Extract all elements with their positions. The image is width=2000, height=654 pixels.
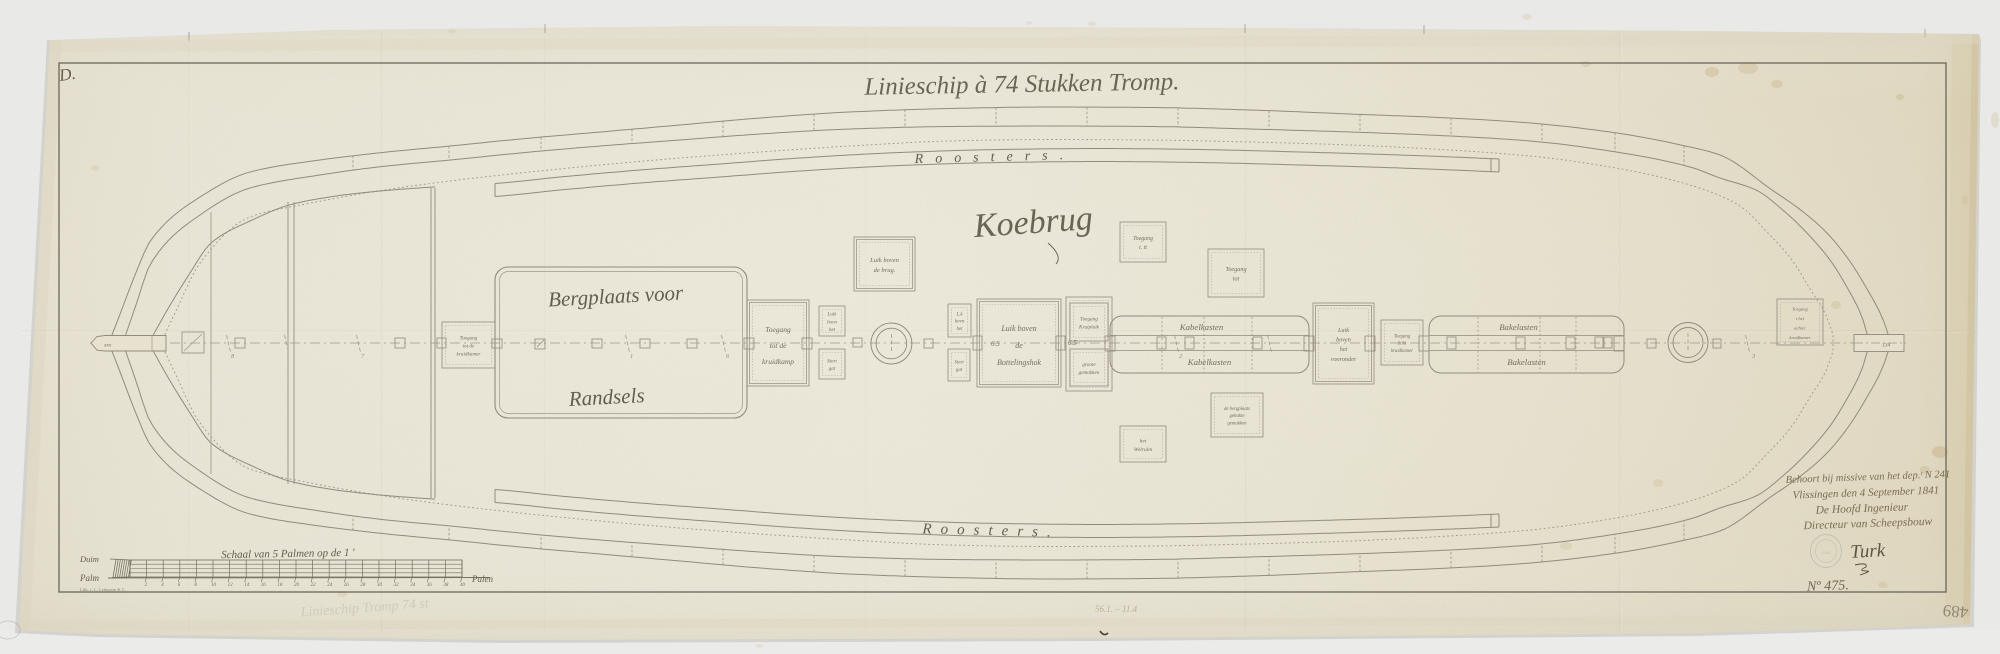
svg-text:Randsels: Randsels (567, 383, 645, 411)
svg-text:Toegang: Toegang (1133, 236, 1153, 242)
svg-text:de: de (1015, 341, 1023, 350)
svg-text:het: het (1340, 346, 1348, 353)
svg-text:Luik boven: Luik boven (869, 257, 899, 264)
svg-text:32: 32 (394, 583, 400, 588)
svg-text:Luik: Luik (1337, 327, 1349, 334)
svg-text:Bakelasten: Bakelasten (1507, 357, 1546, 367)
svg-text:xxx: xxx (103, 343, 112, 349)
svg-text:134: 134 (1882, 342, 1891, 349)
svg-text:24: 24 (327, 583, 333, 588)
svg-text:14: 14 (244, 583, 250, 588)
svg-text:Toegang: Toegang (1080, 316, 1098, 322)
svg-text:36: 36 (427, 583, 433, 588)
svg-text:38: 38 (443, 583, 449, 588)
svg-text:Kabelkasten: Kabelkasten (1187, 357, 1232, 367)
svg-text:Stikt: Stikt (1398, 342, 1407, 347)
svg-text:Stort: Stort (827, 359, 837, 364)
svg-text:de bergplaats: de bergplaats (1224, 407, 1250, 412)
svg-text:vooronder: vooronder (1331, 356, 1357, 363)
svg-text:bovn: bovn (955, 320, 965, 325)
svg-text:10: 10 (211, 583, 217, 588)
svg-text:boven: boven (1336, 337, 1351, 344)
svg-text:groote: groote (1082, 362, 1096, 368)
svg-text:gehakte: gehakte (1230, 414, 1246, 419)
svg-text:Toegang: Toegang (460, 335, 478, 341)
svg-text:56.1. – 11.4: 56.1. – 11.4 (1095, 604, 1138, 614)
svg-text:18: 18 (277, 583, 283, 588)
svg-text:12: 12 (228, 583, 234, 588)
svg-text:bovn: bovn (827, 320, 837, 325)
svg-text:kruidkamer: kruidkamer (1391, 349, 1413, 354)
svg-text:40: 40 (460, 583, 466, 588)
svg-text:16: 16 (261, 583, 267, 588)
svg-text:26: 26 (344, 583, 350, 588)
svg-text:t het: t het (1796, 316, 1805, 321)
svg-text:gemakken: gemakken (1227, 422, 1247, 427)
svg-text:tot: tot (1233, 276, 1240, 283)
svg-text:het: het (1140, 438, 1147, 444)
svg-text:t. tt: t. tt (1139, 245, 1147, 251)
svg-text:Toegang: Toegang (1394, 334, 1411, 339)
svg-text:Lith. v. L. Lehmann & C.: Lith. v. L. Lehmann & C. (80, 587, 126, 592)
svg-text:kruidkamp: kruidkamp (762, 357, 794, 366)
svg-text:6.5: 6.5 (1068, 339, 1077, 347)
svg-text:de brug.: de brug. (874, 267, 896, 274)
svg-text:Linieschip à 74 Stukken Tromp.: Linieschip à 74 Stukken Tromp. (863, 68, 1179, 101)
svg-text:489: 489 (1942, 601, 1969, 622)
svg-text:Turk: Turk (1850, 540, 1886, 563)
svg-text:Stort: Stort (954, 361, 964, 366)
svg-text:Duim: Duim (79, 554, 99, 564)
svg-text:Kabelkasten: Kabelkasten (1179, 322, 1224, 332)
svg-text:achter: achter (1794, 326, 1806, 331)
svg-text:30: 30 (377, 583, 383, 588)
svg-text:Toegang: Toegang (1792, 307, 1808, 312)
svg-text:34: 34 (410, 583, 416, 588)
svg-text:D.: D. (57, 64, 77, 85)
svg-text:Luik boven: Luik boven (1000, 324, 1036, 333)
svg-text:kruidkamer: kruidkamer (1789, 335, 1810, 340)
svg-text:Toegang: Toegang (765, 325, 791, 334)
svg-text:gat: gat (829, 367, 836, 372)
svg-text:tot de: tot de (770, 341, 788, 350)
svg-text:Nº 475.: Nº 475. (1806, 578, 1849, 594)
svg-text:Kruipluik: Kruipluik (1078, 324, 1100, 330)
svg-text:Bakelasten: Bakelasten (1499, 322, 1538, 332)
svg-text:kruidkamer: kruidkamer (457, 352, 482, 358)
svg-text:28: 28 (360, 583, 366, 588)
svg-text:22: 22 (311, 583, 317, 588)
svg-text:Schaal van 5 Palmen op de 1 ′: Schaal van 5 Palmen op de 1 ′ (221, 547, 355, 561)
svg-text:het: het (829, 328, 836, 333)
svg-text:1: 1 (630, 353, 633, 360)
svg-text:20: 20 (294, 583, 300, 588)
svg-text:tot de: tot de (463, 343, 475, 349)
svg-text:Toegang: Toegang (1225, 266, 1246, 273)
svg-text:6.5: 6.5 (991, 340, 1000, 348)
svg-text:Palen: Palen (471, 574, 493, 584)
svg-text:Palm: Palm (79, 573, 99, 583)
svg-text:L.k: L.k (956, 312, 964, 317)
svg-text:gemakken: gemakken (1079, 370, 1100, 376)
svg-text:Bottelingshok: Bottelingshok (997, 358, 1041, 367)
svg-text:Welruim: Welruim (1134, 447, 1152, 453)
svg-text:ZEE: ZEE (1821, 551, 1830, 556)
svg-text:Luik: Luik (827, 313, 838, 318)
svg-text:het: het (957, 327, 964, 332)
svg-text:gat: gat (956, 368, 963, 373)
